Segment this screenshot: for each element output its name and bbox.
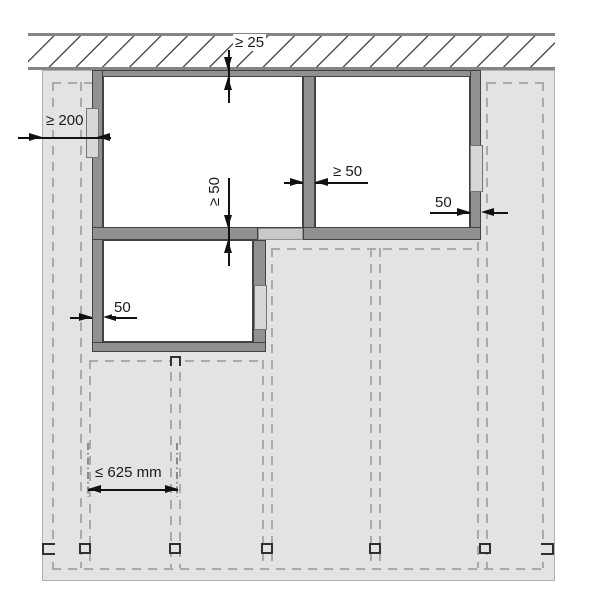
dashed-border-bottom: [52, 568, 543, 570]
dimension-batten-left-tail: [116, 317, 137, 319]
membrane-contour-line: [271, 248, 478, 250]
rafter-line: [370, 248, 372, 568]
rafter-line: [89, 360, 91, 568]
fixing-clip-below-opening: [170, 356, 181, 366]
fixing-clip: [479, 543, 491, 554]
bottom-batten-opening-2: [303, 227, 481, 240]
fixing-clip: [261, 543, 273, 554]
dashed-border-top-right: [487, 82, 543, 84]
arrow-left-icon: [315, 178, 328, 186]
arrow-left-icon: [88, 485, 101, 493]
rafter-line: [477, 242, 479, 568]
dimension-batten-right-tail: [494, 212, 508, 214]
arrow-right-icon: [165, 485, 178, 493]
dimension-batten-right-label: 50: [433, 194, 454, 211]
fixing-clip-edge-right: [541, 543, 554, 555]
arrow-down-icon: [224, 57, 232, 70]
wall-hatch-band: [28, 33, 555, 70]
rafter-line: [80, 82, 82, 568]
dimension-opening-gap-label: ≥ 50: [331, 163, 364, 180]
dimension-batten-left-label: 50: [112, 299, 133, 316]
fixing-clip-edge-left: [42, 543, 55, 555]
arrow-right-icon: [290, 178, 303, 186]
bottom-batten-opening-3: [92, 342, 266, 352]
batten-segment-opening-3: [254, 285, 267, 330]
dimension-rafter-spacing-label: ≤ 625 mm: [93, 464, 164, 481]
arrow-up-icon: [224, 77, 232, 90]
dimension-batten-gap-label: ≥ 50: [206, 175, 223, 208]
roof-opening-3: [103, 240, 253, 342]
dashed-border-top-left: [52, 82, 92, 84]
dimension-top-clearance-label: ≥ 25: [233, 34, 266, 51]
middle-batten: [303, 76, 315, 229]
fixing-clip: [169, 543, 181, 554]
rafter-line: [486, 82, 488, 568]
arrow-left-icon: [481, 208, 494, 216]
rafter-line: [170, 356, 172, 568]
roof-opening-1: [103, 76, 303, 228]
fixing-clip: [79, 543, 91, 554]
arrow-right-icon: [457, 208, 470, 216]
rafter-line: [179, 356, 181, 568]
arrow-right-icon: [79, 313, 92, 321]
rafter-line: [379, 248, 381, 568]
fixing-clip: [369, 543, 381, 554]
rafter-line: [262, 360, 264, 568]
dashed-border-left: [52, 82, 54, 568]
dashed-border-right: [542, 82, 544, 568]
bottom-batten-opening-1: [92, 227, 258, 240]
arrow-down-icon: [224, 215, 232, 228]
dimension-edge-clearance-label: ≥ 200: [44, 112, 85, 129]
arrow-left-icon: [97, 133, 110, 141]
arrow-right-icon: [29, 133, 42, 141]
rafter-line: [271, 248, 273, 568]
counter-batten-strip: [258, 228, 303, 240]
installation-diagram: ≥ 25 ≥ 200 ≥ 50 ≥ 50 50 50 ≤ 625 mm: [0, 0, 600, 600]
batten-segment-right: [470, 145, 483, 192]
arrow-up-icon: [224, 240, 232, 253]
